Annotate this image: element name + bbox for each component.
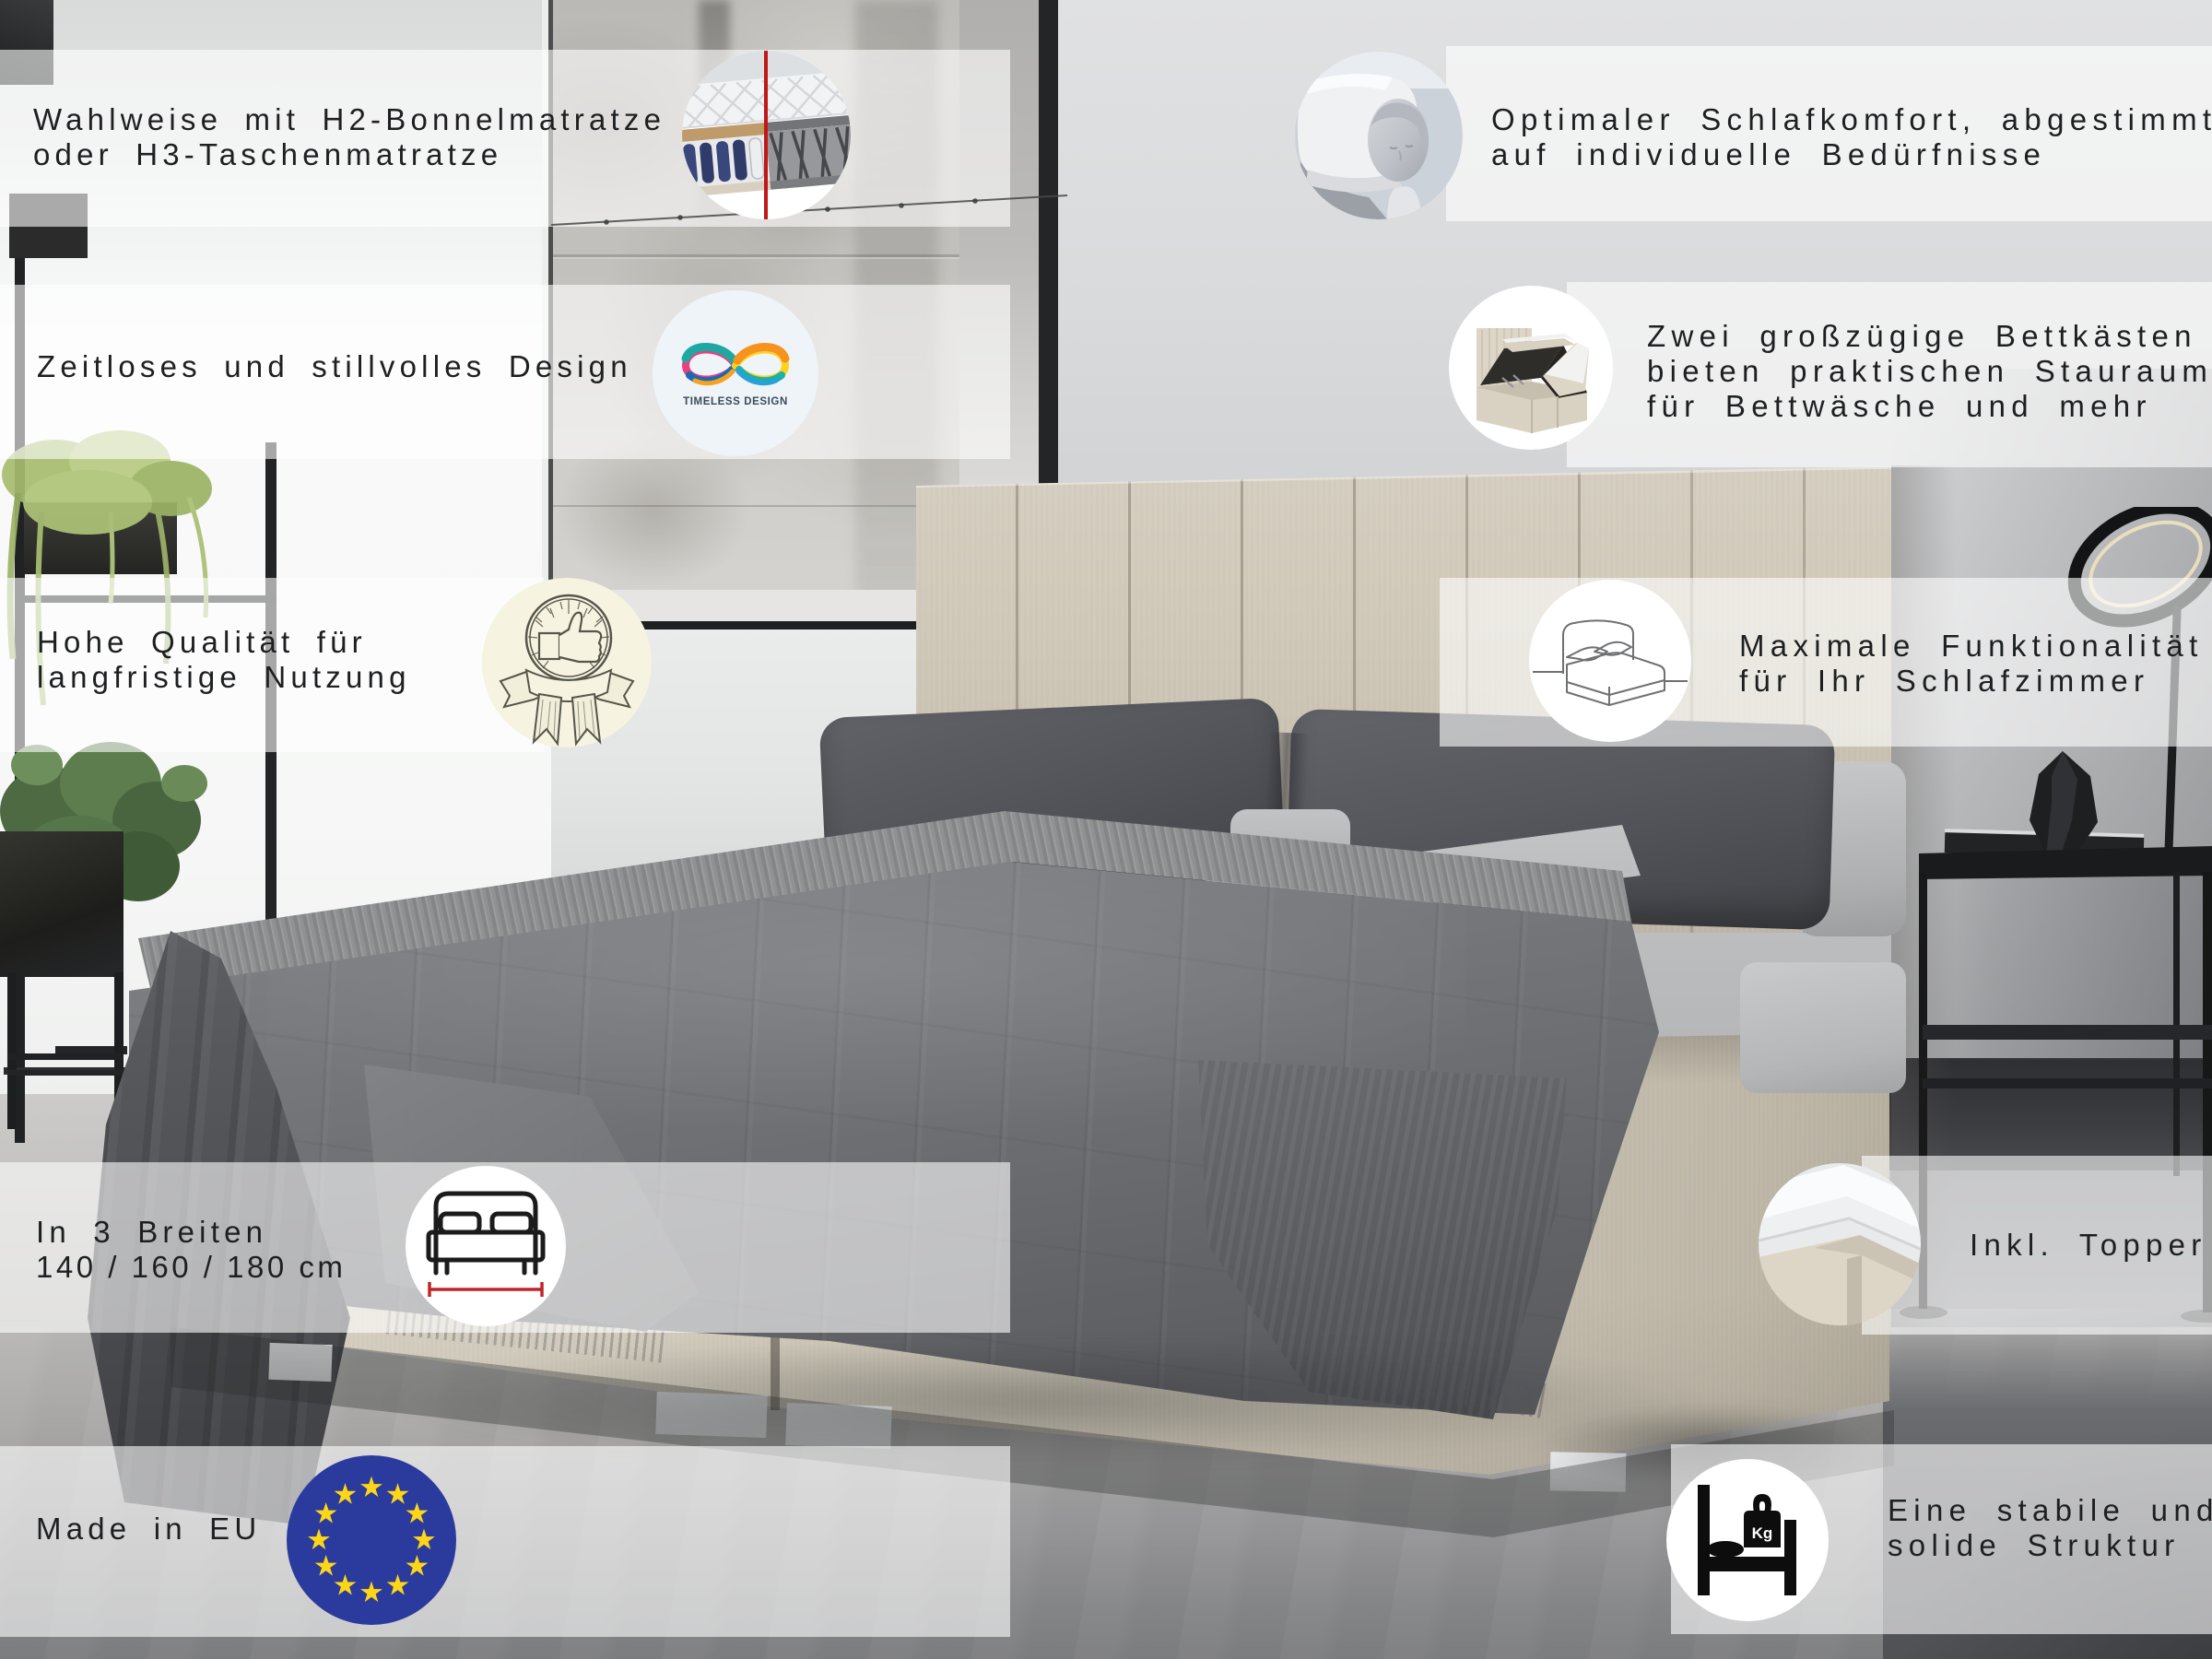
svg-text:Kg: Kg <box>1752 1524 1773 1542</box>
svg-text:TIMELESS DESIGN: TIMELESS DESIGN <box>683 396 788 407</box>
